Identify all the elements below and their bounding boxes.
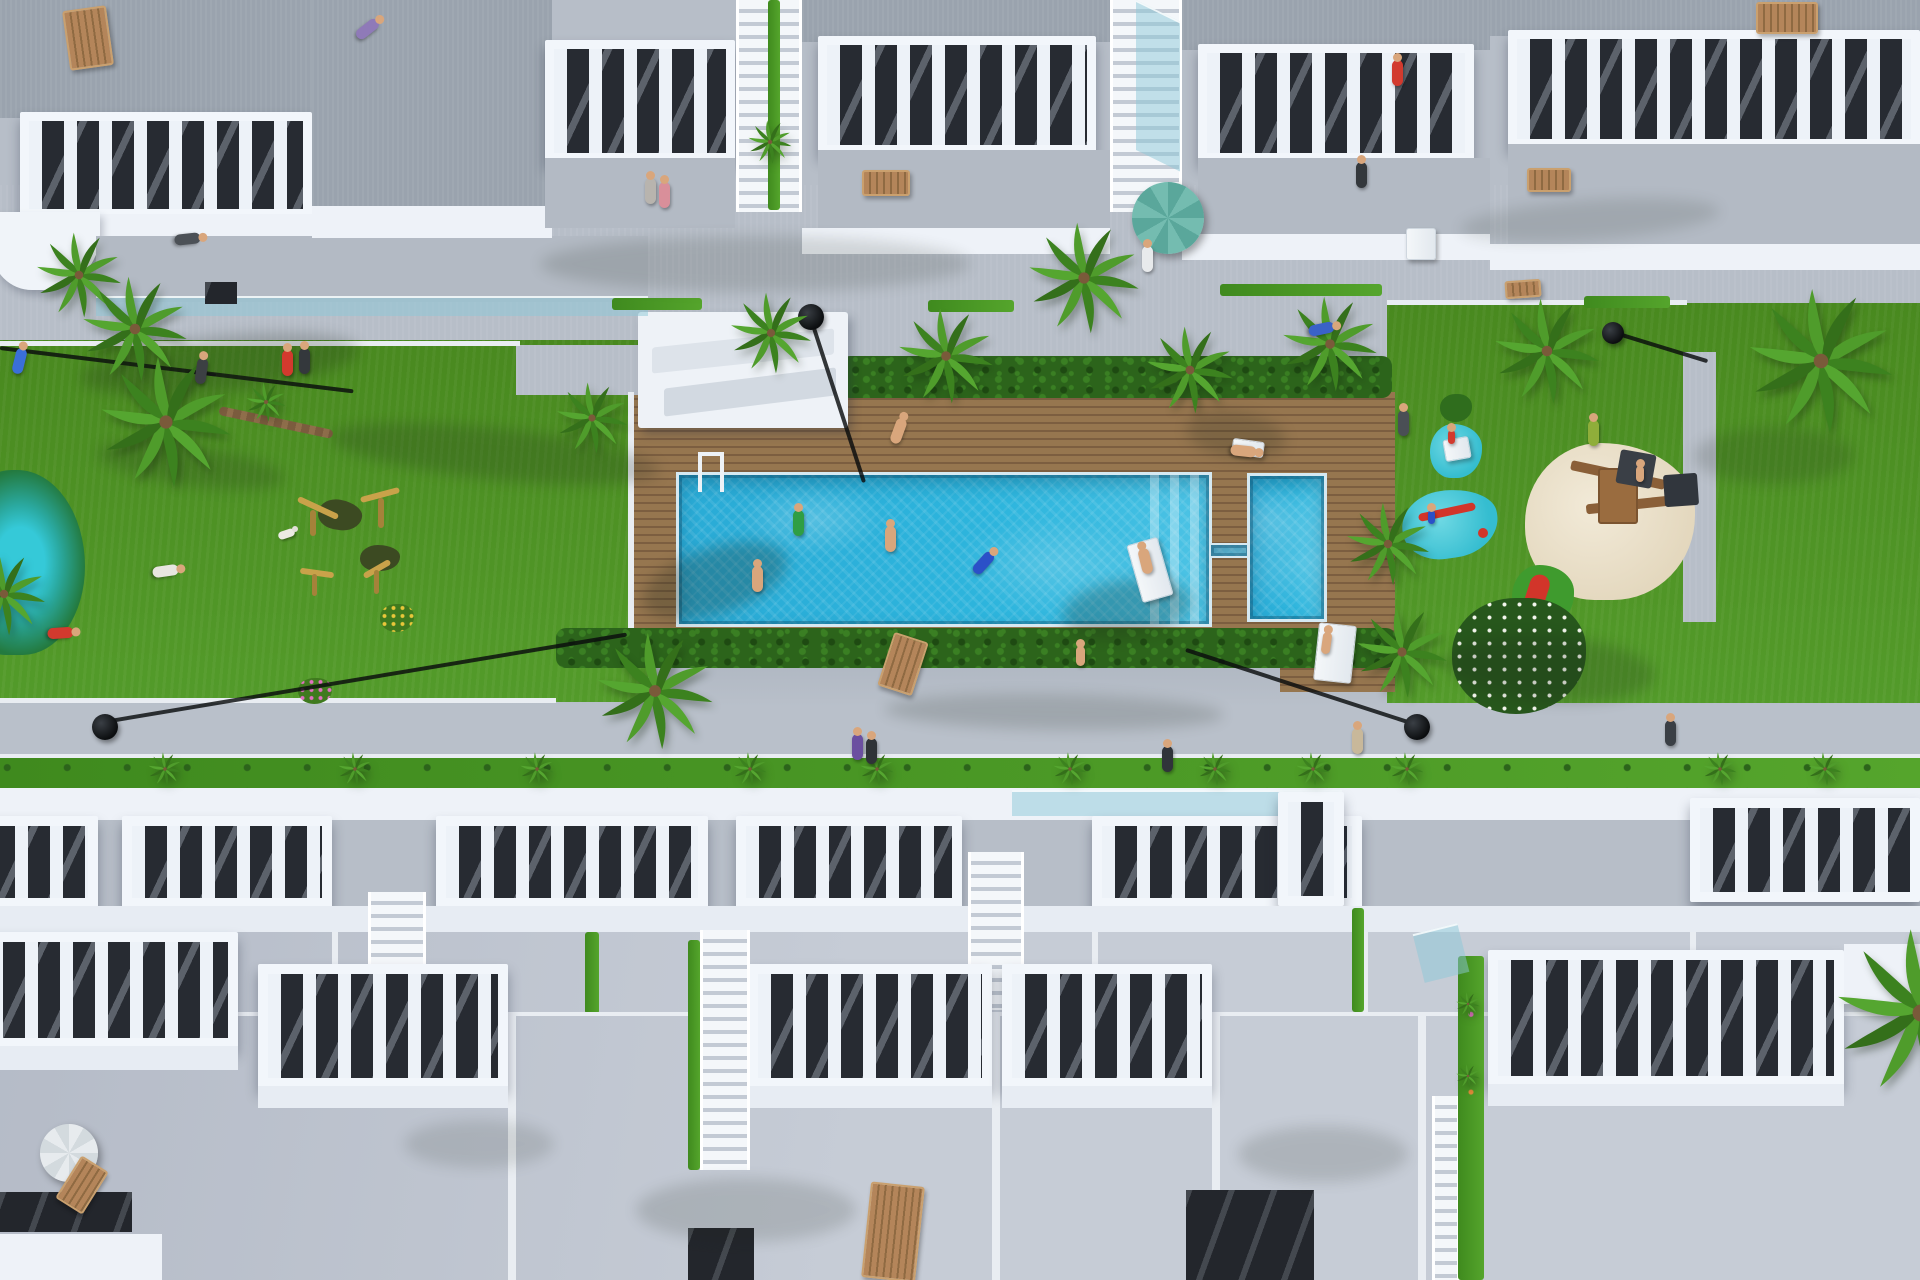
terrace bbox=[1198, 158, 1490, 238]
person bbox=[1665, 720, 1676, 746]
person-head bbox=[1353, 721, 1362, 730]
palm-tree bbox=[1198, 752, 1232, 786]
unit-divider bbox=[1418, 1016, 1426, 1280]
play-ball-red bbox=[1478, 528, 1488, 538]
balcony-railing bbox=[1508, 30, 1920, 148]
person-head bbox=[853, 727, 862, 736]
balcony-railing bbox=[736, 816, 962, 908]
person-head bbox=[1447, 423, 1456, 432]
cast-shadow bbox=[540, 236, 970, 292]
pool-channel bbox=[1209, 543, 1251, 558]
person-head bbox=[1636, 459, 1645, 468]
patio-planter bbox=[1220, 284, 1382, 296]
palm-tree bbox=[1494, 298, 1600, 404]
unit-divider bbox=[992, 1016, 1000, 1280]
balcony-railing bbox=[0, 816, 98, 908]
palm-tree bbox=[1146, 326, 1234, 414]
palm-tree bbox=[1808, 752, 1842, 786]
person-head bbox=[1666, 713, 1675, 722]
balcony-railing bbox=[1488, 950, 1844, 1086]
person-head bbox=[1163, 739, 1172, 748]
balcony-railing bbox=[818, 36, 1096, 154]
person bbox=[1588, 420, 1599, 446]
person bbox=[282, 350, 293, 376]
palm-tree bbox=[100, 356, 232, 488]
dog-head bbox=[292, 526, 298, 532]
person-head bbox=[1076, 639, 1085, 648]
stair-green-strip bbox=[768, 0, 780, 210]
balcony-railing bbox=[545, 40, 735, 162]
palm-tree bbox=[1703, 752, 1737, 786]
curb bbox=[628, 392, 634, 660]
person bbox=[1398, 410, 1409, 436]
palm-tree bbox=[1356, 606, 1448, 698]
wooden-lounger bbox=[1527, 168, 1571, 192]
balcony-railing bbox=[1002, 964, 1212, 1088]
palm-tree bbox=[1456, 1064, 1480, 1088]
person bbox=[1448, 430, 1455, 444]
person bbox=[1162, 746, 1173, 772]
person-head bbox=[646, 171, 655, 180]
balcony-railing bbox=[0, 932, 238, 1048]
white-lounger bbox=[1442, 436, 1471, 462]
person-head bbox=[1427, 503, 1436, 512]
terrace bbox=[545, 158, 735, 228]
person bbox=[645, 178, 656, 204]
person-head bbox=[886, 519, 895, 528]
gym-post bbox=[312, 574, 317, 596]
building-roof bbox=[312, 0, 552, 206]
person-head bbox=[753, 559, 762, 568]
wooden-lounger bbox=[62, 5, 114, 71]
solarium-wedge bbox=[664, 367, 836, 416]
roof-green-strip bbox=[1352, 908, 1364, 1012]
balcony-railing bbox=[1278, 792, 1344, 906]
person bbox=[885, 526, 896, 552]
person bbox=[752, 566, 763, 592]
person bbox=[1356, 162, 1367, 188]
palm-tree bbox=[1456, 992, 1480, 1016]
building-roof bbox=[1182, 0, 1490, 50]
gym-post bbox=[310, 510, 316, 536]
palm-tree bbox=[0, 552, 46, 636]
cast-shadow bbox=[1238, 1126, 1408, 1182]
person bbox=[1392, 60, 1403, 86]
cast-shadow bbox=[636, 1178, 856, 1242]
person-head bbox=[1357, 155, 1366, 164]
pool-ladder-bar bbox=[698, 452, 724, 456]
street-lamp bbox=[1602, 322, 1624, 344]
palm-tree bbox=[338, 752, 372, 786]
balcony-railing bbox=[20, 112, 312, 218]
palm-tree bbox=[1053, 752, 1087, 786]
stair-green-strip bbox=[688, 940, 700, 1170]
rowB-sill bbox=[1002, 1086, 1212, 1108]
aerial-residential-render bbox=[0, 0, 1920, 1280]
balcony-railing bbox=[258, 964, 508, 1088]
palm-tree bbox=[1028, 222, 1140, 334]
person bbox=[299, 348, 310, 374]
person bbox=[1076, 646, 1085, 666]
person-head bbox=[867, 731, 876, 740]
person-head bbox=[794, 503, 803, 512]
balcony-railing bbox=[1198, 44, 1474, 162]
roof-green-strip bbox=[585, 932, 599, 1014]
palm-tree bbox=[1346, 502, 1430, 586]
wooden-lounger bbox=[862, 170, 910, 196]
palm-tree bbox=[1390, 752, 1424, 786]
palm-tree bbox=[1296, 752, 1330, 786]
staircase bbox=[700, 930, 750, 1170]
person-head bbox=[1399, 403, 1408, 412]
wooden-lounger bbox=[1756, 2, 1818, 34]
person bbox=[1142, 246, 1153, 272]
white-lounger bbox=[1406, 228, 1436, 260]
row-planter-strip bbox=[0, 758, 1920, 790]
rowB-sill bbox=[1488, 1084, 1844, 1106]
person bbox=[793, 510, 804, 536]
pool-ladder bbox=[698, 452, 724, 492]
palm-tree bbox=[556, 382, 628, 454]
rowB-corner-band bbox=[0, 1234, 162, 1280]
palm-tree bbox=[898, 308, 994, 404]
terrace-recess bbox=[205, 282, 237, 304]
palm-tree bbox=[1836, 928, 1920, 1098]
palm-tree bbox=[1282, 296, 1378, 392]
curb bbox=[0, 698, 556, 703]
palm-tree bbox=[733, 752, 767, 786]
patio-planter bbox=[612, 298, 702, 310]
person-head bbox=[1143, 239, 1152, 248]
person bbox=[852, 734, 863, 760]
gym-post bbox=[378, 498, 384, 528]
balcony-railing bbox=[436, 816, 708, 908]
wooden-lounger bbox=[1504, 279, 1541, 299]
building-band bbox=[1490, 244, 1920, 270]
cast-shadow bbox=[1694, 428, 1854, 484]
person bbox=[47, 627, 74, 640]
stair-glass-panel bbox=[1136, 0, 1180, 171]
person-head bbox=[300, 341, 309, 350]
balcony-railing bbox=[748, 964, 992, 1088]
palm-tree bbox=[148, 752, 182, 786]
person-head bbox=[283, 343, 292, 352]
rowB-sill bbox=[748, 1086, 992, 1108]
play-structure-canopy bbox=[1663, 473, 1699, 507]
kids-pool bbox=[1247, 473, 1327, 622]
person bbox=[659, 182, 670, 208]
person bbox=[866, 738, 877, 764]
balcony-railing bbox=[122, 816, 332, 908]
white-lounger bbox=[1313, 622, 1357, 684]
rowB-sill bbox=[0, 1046, 238, 1070]
palm-tree bbox=[730, 292, 812, 374]
person-head bbox=[1393, 53, 1402, 62]
building-band bbox=[312, 206, 552, 238]
palm-tree bbox=[520, 752, 554, 786]
rowB-sill bbox=[258, 1086, 508, 1108]
cast-shadow bbox=[404, 1120, 554, 1168]
person-head bbox=[1589, 413, 1598, 422]
building-band bbox=[1182, 234, 1490, 260]
person bbox=[1352, 728, 1363, 754]
person bbox=[1428, 510, 1435, 524]
stairwell-pit bbox=[1186, 1190, 1314, 1280]
person bbox=[1636, 466, 1644, 482]
palm-tree bbox=[1748, 288, 1894, 434]
street-lamp bbox=[92, 714, 118, 740]
person-head bbox=[660, 175, 669, 184]
palm-tree bbox=[748, 120, 792, 164]
balcony-railing bbox=[1690, 798, 1920, 902]
gym-post bbox=[374, 570, 379, 594]
building-roof bbox=[0, 0, 312, 118]
palm-tree bbox=[596, 632, 714, 750]
palm-tree bbox=[246, 382, 286, 422]
staircase bbox=[1432, 1096, 1460, 1280]
row-sill bbox=[0, 906, 1920, 934]
street-lamp bbox=[1404, 714, 1430, 740]
wooden-lounger bbox=[861, 1181, 925, 1280]
